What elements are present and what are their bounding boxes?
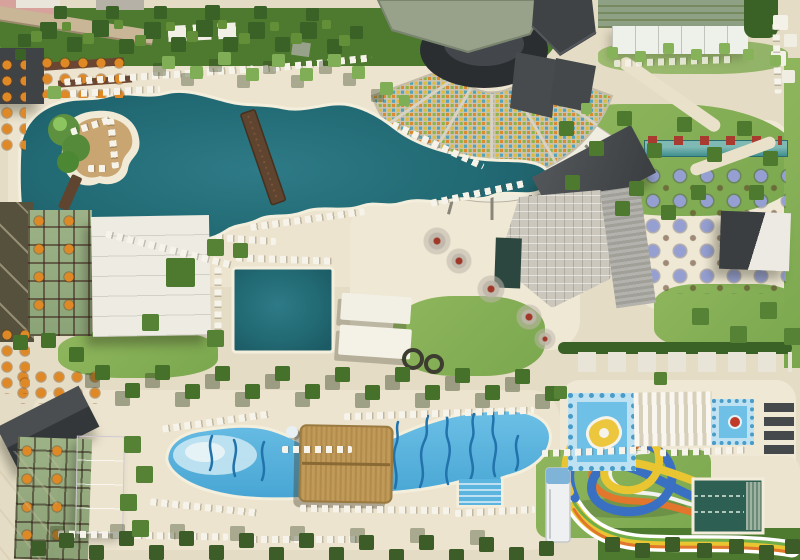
pink-building-roof [16, 0, 60, 8]
pavilion-row [578, 352, 792, 372]
pool-character-face [599, 428, 609, 438]
balcony-umbrellas-mid [32, 214, 86, 322]
blossom-tree [444, 246, 474, 276]
kids-slide-feature [730, 417, 740, 427]
tiki-hut [293, 425, 392, 509]
left-edge-seating-mid [0, 328, 30, 394]
lap-pool-slat-floor [746, 482, 761, 530]
lounger-row [250, 536, 370, 543]
fire-pit [424, 354, 444, 374]
relax-pool [233, 268, 333, 352]
corner-gable-roof [0, 449, 62, 560]
courts-pergola-roof [598, 0, 748, 28]
wave-pool-steps [459, 479, 501, 505]
pink-court [75, 436, 125, 535]
fire-pit [402, 348, 424, 370]
kids-pool-large [568, 393, 636, 471]
courts-white-wall [612, 26, 748, 54]
slat-canopy [634, 391, 713, 446]
slide-tower [546, 468, 570, 542]
resort-aerial-photo [0, 0, 800, 560]
kids-pool-small [712, 399, 754, 445]
lounger-row [215, 268, 222, 340]
cabana-stack [764, 402, 794, 454]
shade-canopies [334, 293, 412, 366]
blossom-tree [474, 272, 508, 306]
gray-building-top [96, 0, 144, 10]
island-lounger-pair [88, 165, 106, 172]
left-edge-seating-top [0, 58, 26, 154]
tree-scatter-mid [0, 0, 1, 1]
blossom-tree [532, 326, 558, 352]
lounger-row [282, 446, 352, 453]
kiosk-green-roof [291, 41, 311, 57]
pool-umbrella [286, 426, 298, 438]
stage-canopy [719, 211, 791, 271]
